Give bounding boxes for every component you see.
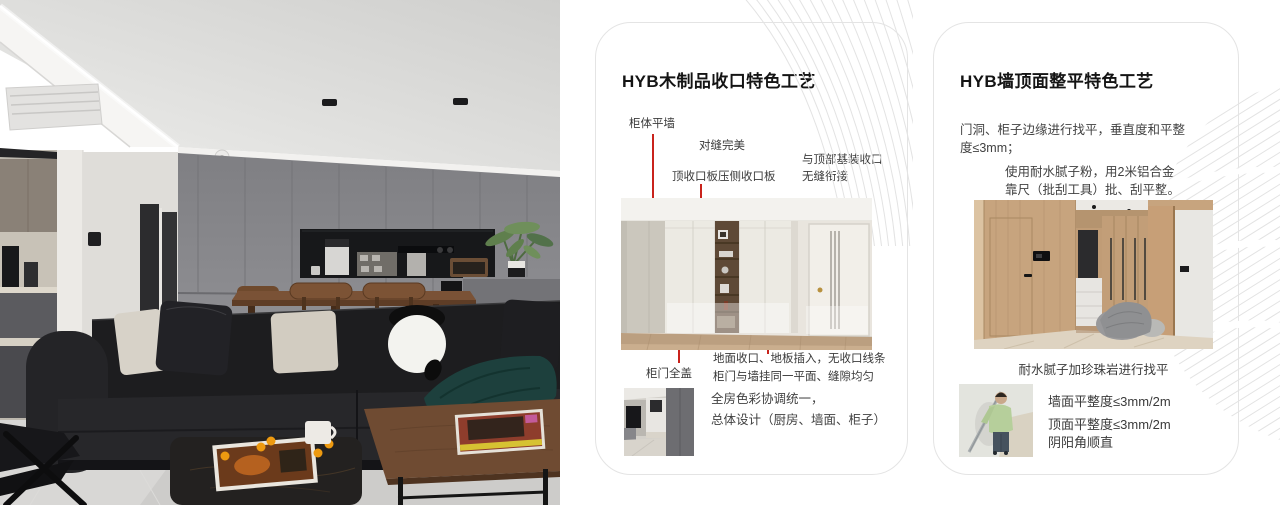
label-seam-perfect: 对缝完美 [699,139,745,154]
ac-vent [6,84,102,130]
mug [305,421,335,444]
promo-page: { "photo": { "description": "modern livi… [0,0,1280,505]
black-leather-cushion [155,300,233,376]
text-color-harmony-1: 全房色彩协调统一， [711,391,824,409]
coffee-machine [2,246,19,288]
photo-caption: 耐水腻子加珍珠岩进行找平 [974,359,1213,378]
text-leveling-para1-line1: 门洞、柜子边缘进行找平，垂直度和平整 [960,122,1185,140]
door-handle [1024,274,1032,277]
card2-title: HYB墙顶面整平特色工艺 [960,67,1154,92]
wardrobe-render-image [621,198,872,350]
capsule-machine [407,253,426,276]
appliance-niche [300,229,495,278]
ceiling-spotlight [453,98,468,105]
dining-chair [290,283,352,299]
card-wood-finishing: HYB木制品收口特色工艺 柜体平墙 对缝完美 顶收口板压侧收口板 与顶部基装收口… [595,22,908,475]
dark-door [162,212,177,310]
label-cabinet-flush-wall: 柜体平墙 [629,117,675,132]
label-top-joint-1: 与顶部基装收口 [802,153,883,168]
ceiling [0,0,560,177]
closet-room-photo [974,200,1213,349]
label-floor-joint-1: 地面收口、地板插入，无收口线条 [713,352,886,367]
magazine [455,409,546,455]
spec-corners-straight: 阴阳角顺直 [1048,432,1113,451]
spec-wall-flatness: 墙面平整度≤3mm/2m [1048,391,1171,410]
text-leveling-para2-line1: 使用耐水腻子粉，用2米铝合金 [1005,164,1174,182]
open-door-leaf [1148,206,1174,338]
label-top-closing-panel: 顶收口板压侧收口板 [672,170,776,185]
worker-thumbnail-photo [959,384,1033,457]
light-switch [88,232,101,246]
label-door-full-cover: 柜门全盖 [646,367,692,382]
card-wall-leveling: HYB墙顶面整平特色工艺 门洞、柜子边缘进行找平，垂直度和平整 度≤3mm； 使… [933,22,1239,475]
label-floor-joint-2: 柜门与墙挂同一平面、缝隙均匀 [713,370,874,385]
text-leveling-para1-line2: 度≤3mm； [960,140,1020,158]
ceiling-spotlight [322,99,337,106]
beige-cushion [270,310,338,373]
dark-door [140,204,159,316]
spec-ceiling-flatness: 顶面平整度≤3mm/2m [1048,414,1171,433]
text-leveling-para2-line2: 靠尺（批刮工具）批、刮平整。 [1005,182,1180,200]
wall-socket [441,281,462,292]
living-room-photo [0,0,560,505]
kitchen-thumbnail-photo [624,388,694,456]
dining-chair [363,283,425,299]
magazine [212,437,318,492]
label-top-joint-2: 无缝衔接 [802,170,848,185]
card1-title: HYB木制品收口特色工艺 [622,67,816,92]
text-color-harmony-2: 总体设计（厨房、墙面、柜子） [711,412,886,430]
